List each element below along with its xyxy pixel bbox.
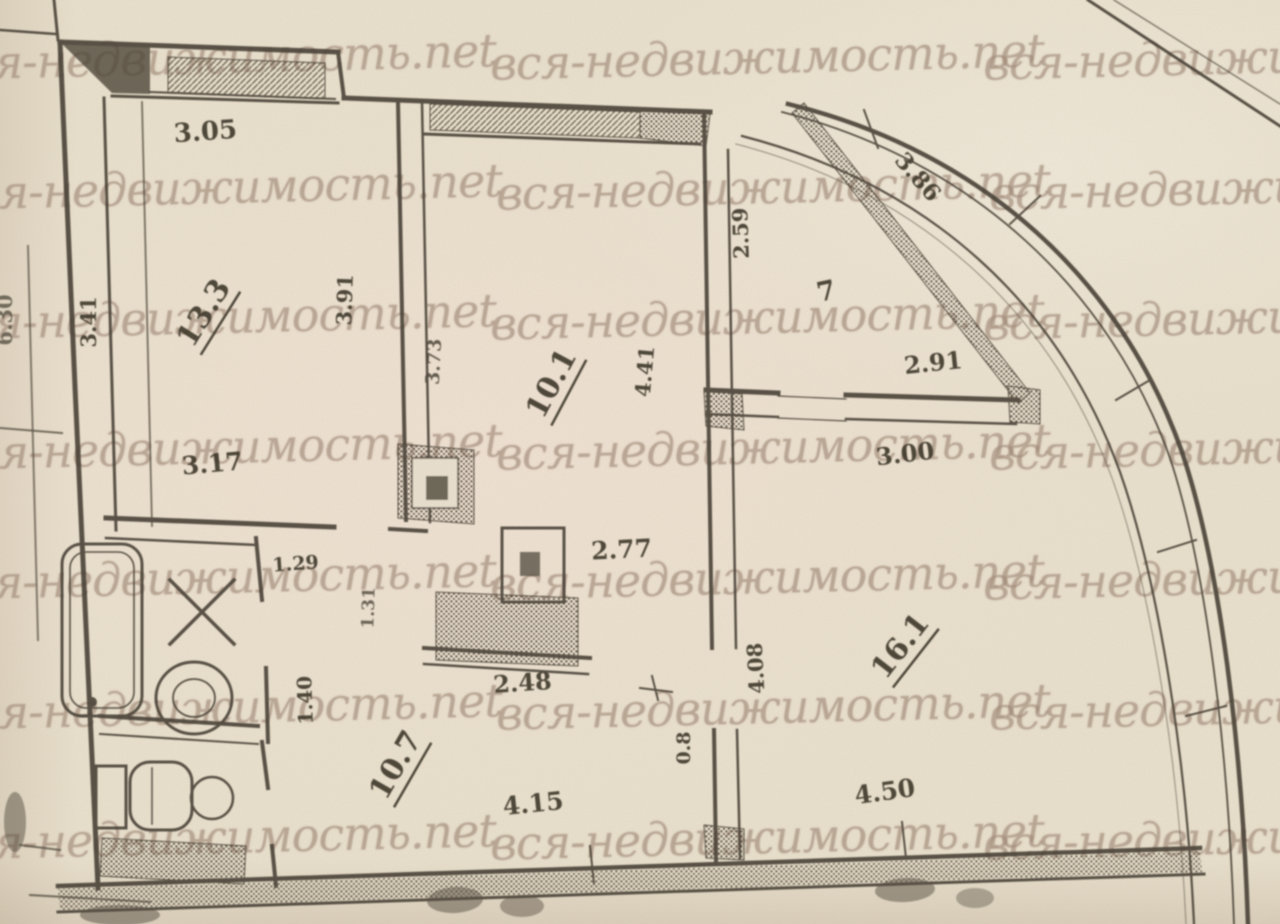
floor-plan-photo: вся-недвижимость.netвся-недвижимость.net… bbox=[0, 0, 1280, 924]
paper-grain bbox=[0, 0, 1280, 924]
floor-plan-svg: 3.05 3.17 3.41 6.30 3.91 3.73 4.41 2.77 … bbox=[0, 0, 1280, 924]
